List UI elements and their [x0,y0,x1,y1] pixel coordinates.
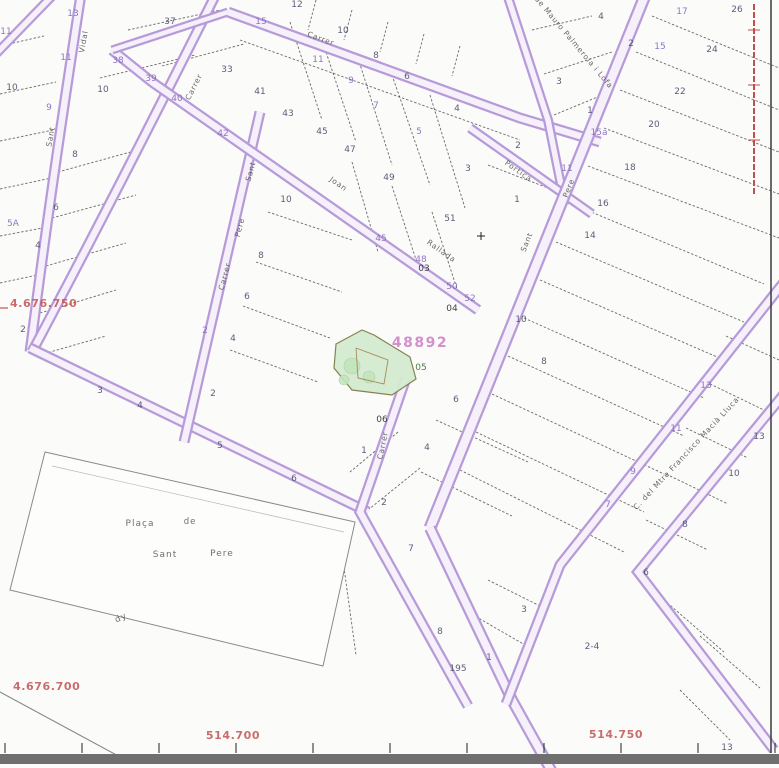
parcel-number: 41 [254,87,265,97]
parcel-number: 8 [682,520,688,530]
cadastral-map-svg[interactable]: VidalSantCarrerCarrerJoanRalladaSantPere… [0,0,779,768]
parcel-number: 10 [728,469,740,479]
parcel-boundary-line [416,34,424,64]
parcel-boundary-line [540,280,724,360]
parcel-boundary-line [508,356,684,436]
parcel-number: 1 [587,106,593,116]
parcel-number: 7 [408,544,414,554]
grid-coordinate-label: 514.750 [589,728,643,741]
parcel-boundary-line [380,22,388,52]
parcel-number: 6 [244,292,250,302]
parcel-number: 9 [630,467,636,477]
parcel-number: 8 [258,251,264,261]
parcel-number: 8 [437,627,443,637]
parcel-number: 2 [20,325,26,335]
parcel-number: 7 [373,101,379,111]
parcel-boundary-line [556,242,744,322]
bottom-left-boundary-line [0,692,122,758]
plaza-name-label: Pere [210,549,234,559]
parcel-number: 4 [454,104,460,114]
parcel-boundary-line [392,75,430,185]
parcel-number: 195 [449,664,466,674]
parcel-number: 47 [344,145,355,155]
parcel-boundary-line [240,40,520,140]
parcel-number: 5 [217,441,223,451]
parcel-boundary-line [636,52,779,110]
parcel-number: 10 [337,26,349,36]
parcel-number: 11 [60,53,71,63]
parcel-number: 2 [210,389,216,399]
parcel-number: 1 [361,446,367,456]
parcel-number: 15a [591,128,608,138]
parcel-boundary-line [680,690,730,740]
parcel-number: 5A [7,219,20,229]
parcel-number: 3 [556,77,562,87]
parcel-number: 8 [541,357,547,367]
parcel-number: 49 [383,173,395,183]
parcel-number: 17 [676,7,687,17]
parcel-number: 14 [584,231,596,241]
parcel-number: 13 [721,743,732,753]
parcel-number: 05 [415,363,426,373]
parcel-number: 7 [605,500,611,510]
parcel-number: 5 [416,127,422,137]
parcel-number: 4 [230,334,236,344]
parcel-number: 2 [202,326,208,336]
parcel-number: 37 [164,17,175,27]
parcel-boundary-line [476,432,644,512]
grid-coordinate-label: 4.676.750 [10,297,77,310]
street-band-fill [430,528,552,768]
parcel-boundary-line [652,16,779,68]
parcel-number: 1 [486,653,492,663]
parcel-number: 13 [753,432,764,442]
parcel-boundary-line [308,0,316,30]
parcel-number: 10 [6,83,18,93]
parcel-number: 4 [35,241,41,251]
parcel-number: 43 [282,109,293,119]
parcel-number: 8 [72,150,78,160]
parcel-number: 22 [674,87,685,97]
plaza-name-label: Sant [153,550,177,560]
grid-coordinate-label: 514.700 [206,729,260,742]
parcel-number: 6 [404,72,410,82]
plaza-name-label: de [184,517,197,527]
parcel-number: 11 [670,424,681,434]
parcel-boundary-line [572,204,764,284]
parcel-number: 6 [643,568,649,578]
parcel-number: 42 [217,129,228,139]
parcel-code-label: 48892 [392,335,448,351]
parcel-boundary-line [620,90,779,152]
parcel-number: 45 [316,127,327,137]
parcel-boundary-line [588,166,779,238]
parcel-boundary-line [706,382,768,412]
parcel-number: 4 [598,12,604,22]
parcel-boundary-line [230,350,318,382]
parcel-number: 04 [446,304,458,314]
parcel-number: 4 [424,443,430,453]
parcel-number: 39 [145,74,157,84]
parcel-boundary-line [256,262,342,292]
parcel-boundary-line [436,420,528,462]
tree-symbol [339,375,349,385]
parcel-number: 40 [171,94,183,104]
parcel-number: 6 [53,203,59,213]
parcel-number: 33 [221,65,232,75]
parcel-number: 24 [706,45,718,55]
parcel-number: 2 [381,498,387,508]
parcel-number: 6 [453,395,459,405]
parcel-boundary-line [52,195,136,218]
parcel-number: 16 [597,199,609,209]
parcel-number: 4 [137,401,143,411]
parcel-number: 9 [46,103,52,113]
parcel-number: 45 [375,234,386,244]
parcel-boundary-line [243,306,330,338]
parcel-number: 3 [465,164,471,174]
parcel-number: 15 [255,17,266,27]
parcel-boundary-line [452,46,460,76]
parcel-number: 2 [628,39,634,49]
plaza-name-label: Plaça [126,519,155,529]
parcel-number: 06 [376,415,388,425]
parcel-number: 50 [446,282,458,292]
parcel-boundary-line [524,318,704,398]
parcel-number: 11 [561,164,572,174]
parcel-number: 03 [418,264,429,274]
parcel-number: 20 [648,120,660,130]
parcel-number: 15 [654,42,665,52]
parcel-number: 13 [67,9,78,19]
grid-coordinate-label: 4.676.700 [13,680,80,693]
parcel-number: 18 [624,163,636,173]
parcel-boundary-line [488,580,540,606]
parcel-number: 51 [444,214,455,224]
street-name-label: Carrer [183,72,204,101]
parcel-number: 13 [700,381,711,391]
parcel-boundary-line [604,128,779,194]
parcel-number: 10 [97,85,109,95]
parcel-number: 3 [521,605,527,615]
street-name-label: Joan [327,174,349,193]
parcel-number: 10 [280,195,292,205]
parcel-number: 52 [464,294,475,304]
parcel-number: 38 [112,56,124,66]
parcel-number: 2-4 [585,642,600,652]
parcel-number: 12 [291,0,302,10]
bottom-scale-bar [0,754,779,764]
parcel-number: 6 [291,474,297,484]
parcel-number: 11 [312,55,323,65]
parcel-number: 11 [0,27,11,37]
parcel-number: 2 [515,141,521,151]
street-name-label: Sant [519,231,535,253]
parcel-number: 1 [514,195,520,205]
parcel-number: 8 [373,51,379,61]
parcel-number: 9 [348,76,354,86]
parcel-boundary-line [162,44,244,66]
parcel-number: 26 [731,5,743,15]
parcel-number: 3 [97,386,103,396]
parcel-number: 10 [515,315,527,325]
cadastral-map-canvas[interactable]: VidalSantCarrerCarrerJoanRalladaSantPere… [0,0,779,768]
